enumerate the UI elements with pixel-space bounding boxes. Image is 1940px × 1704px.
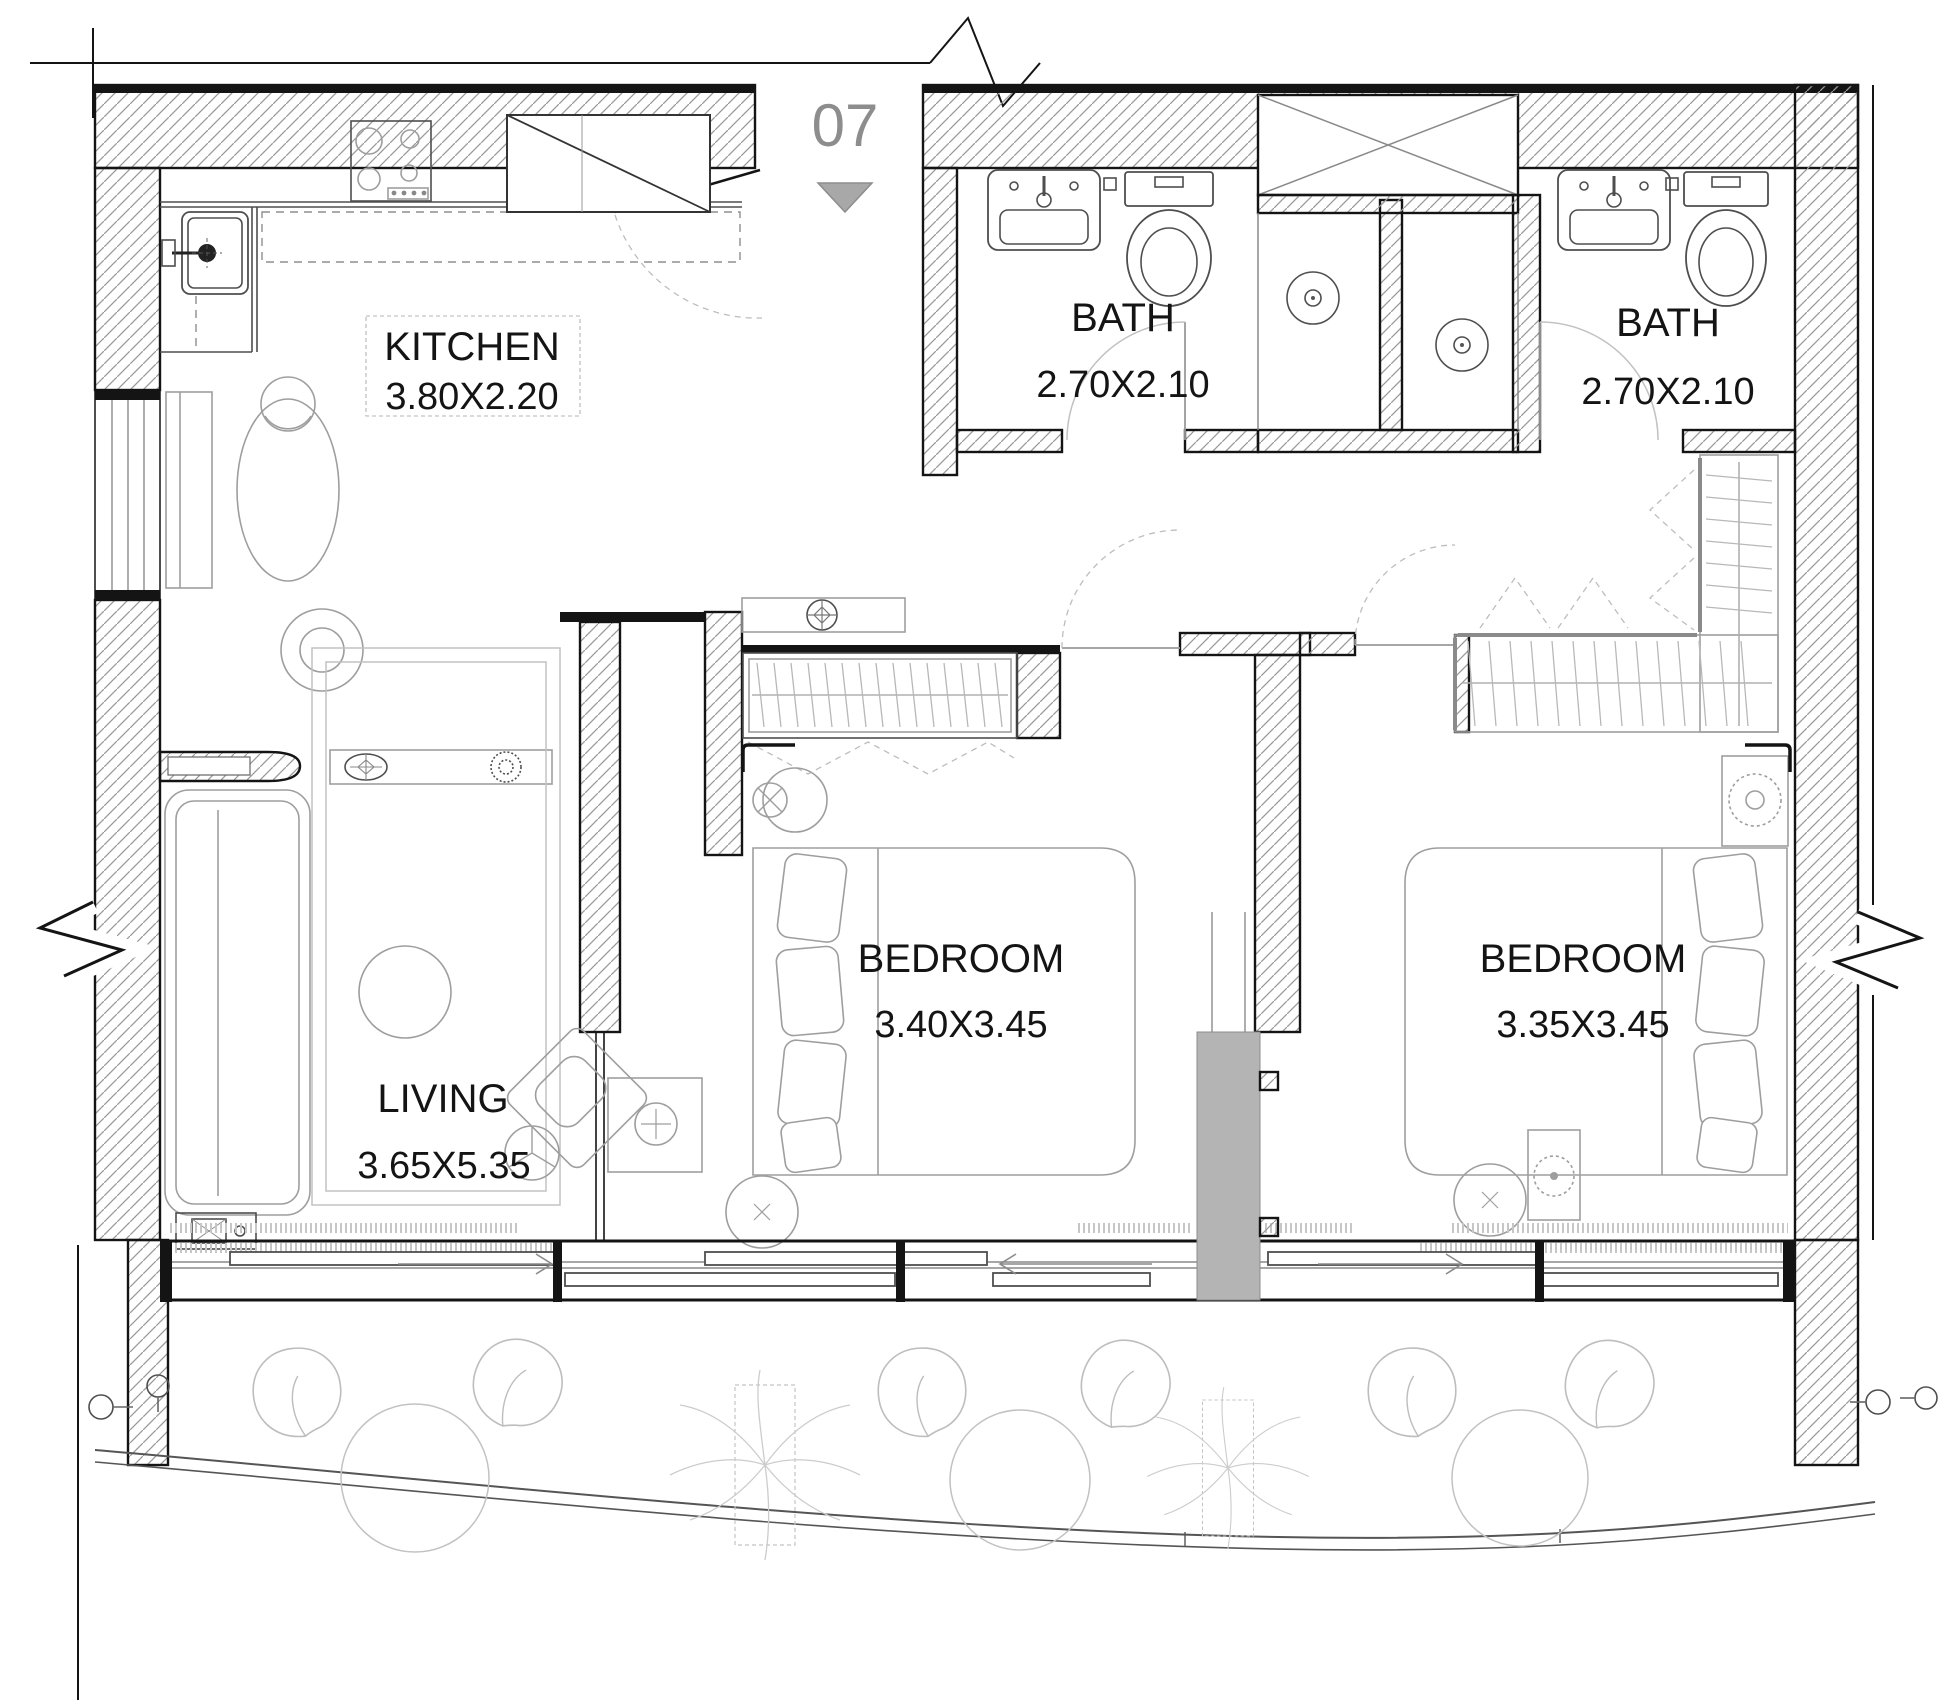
slider-panel <box>230 1252 560 1265</box>
slider-panel <box>705 1252 987 1265</box>
wall-shower-bottom <box>1258 430 1518 452</box>
balcony-seating-center <box>870 1331 1179 1550</box>
wall-corridor <box>560 612 705 622</box>
bath2-toilet <box>1684 172 1768 306</box>
svg-text:3.65X5.35: 3.65X5.35 <box>357 1145 530 1187</box>
wall-left-upper <box>95 168 160 390</box>
bedroom2-nightstand <box>1722 756 1788 846</box>
balcony-seating-left <box>243 1330 571 1552</box>
shower2-drain-icon <box>1436 319 1488 371</box>
bedroom2-closet <box>1455 455 1778 732</box>
bedroom1-door <box>1062 530 1180 648</box>
slider-panel <box>1543 1273 1778 1286</box>
dining-set <box>166 377 363 691</box>
bedroom2-curtain-bracket <box>1745 745 1790 772</box>
coffee-table <box>359 946 451 1038</box>
living-sofa <box>165 790 310 1215</box>
kitchen-label: KITCHEN 3.80X2.20 <box>384 325 560 418</box>
plant-icon <box>1147 1387 1309 1549</box>
kitchen-upper-cabinets <box>262 212 740 262</box>
bedroom1-fcu <box>742 598 905 632</box>
balcony-seating-right <box>1360 1333 1662 1546</box>
svg-text:3.80X2.20: 3.80X2.20 <box>385 376 558 418</box>
kitchen-sink <box>162 212 248 294</box>
balcony-zone <box>89 1330 1937 1560</box>
window-left <box>95 390 160 600</box>
service-shaft <box>1258 95 1518 213</box>
bedroom1-stool <box>726 1176 798 1248</box>
half-wall <box>160 752 300 781</box>
living-rug <box>312 648 560 1205</box>
bath1-sink <box>988 170 1100 250</box>
wall-shower-divider <box>1380 200 1402 430</box>
slider-panel <box>993 1273 1150 1286</box>
plant-icon <box>670 1370 860 1560</box>
wall-bath1-bottom-left <box>957 430 1062 452</box>
bedroom1-wardrobe <box>743 653 1017 774</box>
bath2-sink <box>1558 170 1670 250</box>
ceiling-light-icon <box>753 768 827 832</box>
railing-joint-icon <box>1850 1387 1937 1414</box>
wall-left-lower <box>95 600 160 1240</box>
bedroom1-side-table <box>608 1078 702 1172</box>
wall-bath1-left <box>923 168 957 475</box>
wall-bath2-left <box>1513 195 1540 452</box>
slide-arrow-bedroom1 <box>1000 1254 1152 1274</box>
floor-plan-canvas: 07 KITCHEN 3.80X2.20 BATH 2.70X2.10 BATH… <box>0 0 1940 1704</box>
shower1-drain-icon <box>1287 272 1339 324</box>
svg-text:KITCHEN: KITCHEN <box>384 325 560 369</box>
bath2-label: BATH 2.70X2.10 <box>1581 301 1754 413</box>
bath1-toilet <box>1125 172 1213 306</box>
svg-text:2.70X2.10: 2.70X2.10 <box>1036 364 1209 406</box>
bedroom2-door <box>1355 545 1455 645</box>
slider-panel <box>1268 1252 1538 1265</box>
balcony-parapet <box>95 1450 1875 1538</box>
svg-text:BATH: BATH <box>1071 296 1175 340</box>
svg-text:3.35X3.45: 3.35X3.45 <box>1496 1004 1669 1046</box>
bedroom-2-zone <box>1405 455 1790 1236</box>
window-band <box>160 1228 1795 1302</box>
svg-text:3.40X3.45: 3.40X3.45 <box>874 1004 1047 1046</box>
svg-text:BEDROOM: BEDROOM <box>858 937 1065 981</box>
svg-text:BATH: BATH <box>1616 301 1720 345</box>
bedroom1-curtain-bracket <box>743 745 795 772</box>
svg-text:LIVING: LIVING <box>377 1077 508 1121</box>
wall-right <box>1795 85 1858 1240</box>
wall-bath1-bottom-right <box>1185 430 1258 452</box>
wall-bedroom1-stub <box>705 612 742 855</box>
unit-number-label: 07 <box>812 92 879 159</box>
wall-bedroom-partition <box>1255 655 1300 1032</box>
svg-text:2.70X2.10: 2.70X2.10 <box>1581 371 1754 413</box>
wall-balcony-right <box>1795 1240 1858 1465</box>
entry-marker-icon <box>818 183 872 212</box>
kitchen-tall-unit <box>507 115 710 212</box>
wall-living-bedroom1 <box>580 622 620 1032</box>
living-label: LIVING 3.65X5.35 <box>357 1077 530 1187</box>
wall-bedroom1-top <box>742 645 1060 653</box>
bath1-label: BATH 2.70X2.10 <box>1036 296 1209 406</box>
bath1-valve <box>1104 178 1116 190</box>
svg-text:BEDROOM: BEDROOM <box>1480 937 1687 981</box>
wall-bedroom2-top <box>1300 633 1355 655</box>
wall-bath2-bottom <box>1683 430 1795 452</box>
slider-panel <box>565 1273 895 1286</box>
living-fcu <box>330 750 552 784</box>
wall-partition-stub <box>1180 633 1310 655</box>
